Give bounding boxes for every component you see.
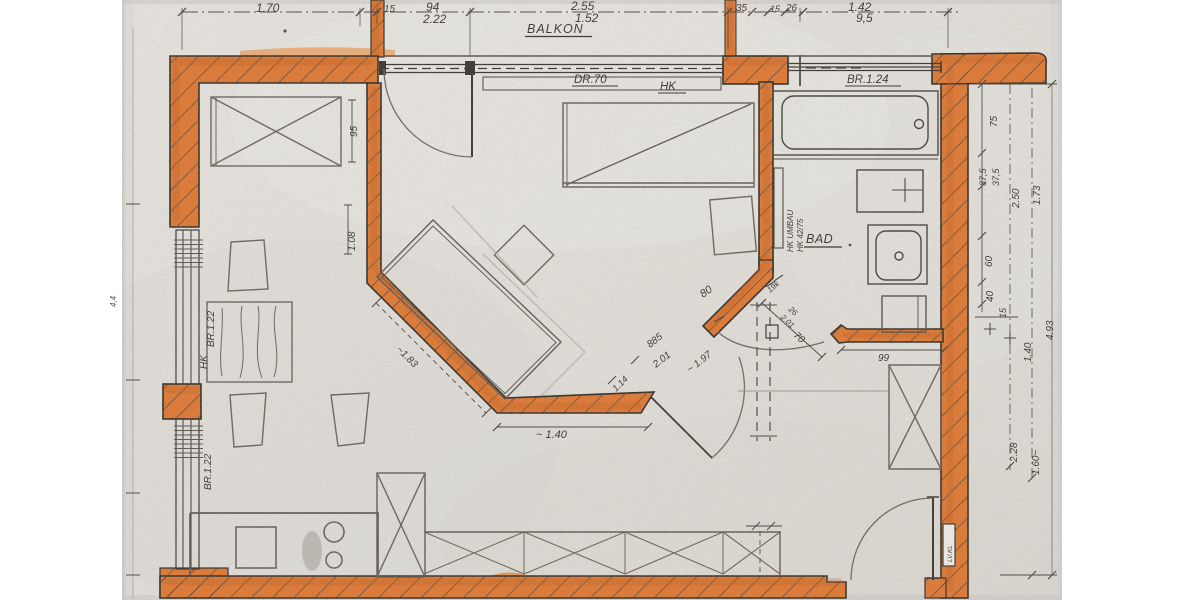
svg-text:4,4: 4,4 — [109, 295, 118, 307]
